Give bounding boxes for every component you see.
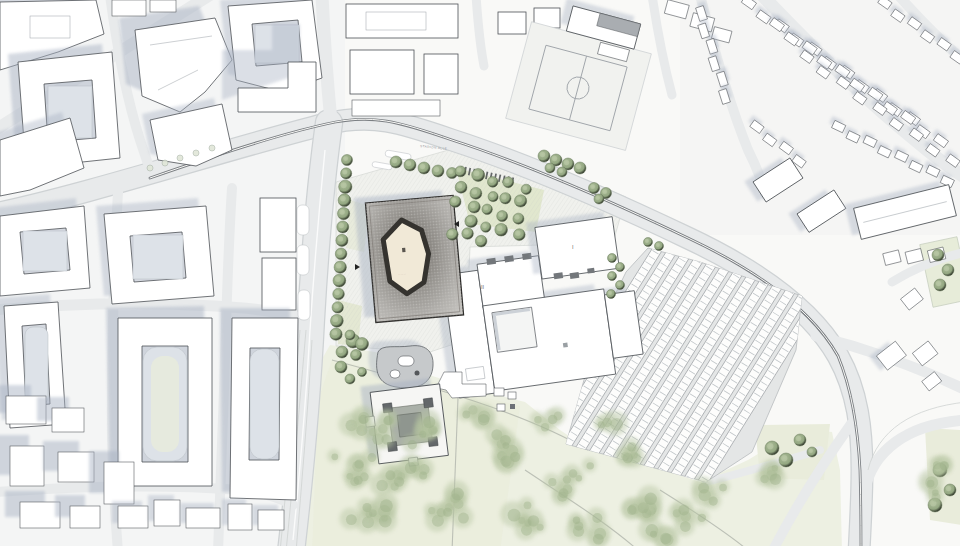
tree-highlight <box>552 156 557 161</box>
park-tree-core <box>458 513 469 524</box>
park-tree-core <box>385 470 395 480</box>
roof-vent <box>563 343 568 348</box>
tree-highlight <box>617 282 621 286</box>
site-plan-canvas: ·· ··· ·· STADION ALLE I II ·· ·· <box>0 0 960 546</box>
tree-highlight <box>392 158 397 163</box>
bus-bay <box>298 290 310 320</box>
park-tree-core <box>405 462 417 474</box>
tree-highlight <box>482 223 487 228</box>
tree-highlight <box>470 203 475 208</box>
tree-highlight <box>564 160 569 165</box>
park-tree-core <box>478 414 490 426</box>
tree-highlight <box>357 339 363 345</box>
masterplan-drawing: ·· ··· ·· STADION ALLE I II ·· ·· <box>0 0 960 546</box>
tree-highlight <box>474 170 480 176</box>
tree-highlight <box>451 198 456 203</box>
house <box>52 408 84 432</box>
tree-highlight <box>448 230 453 235</box>
entrance-block <box>587 268 595 274</box>
house <box>258 510 284 530</box>
pavilion-building <box>535 217 619 279</box>
tree-highlight <box>576 164 581 169</box>
park-tree-core <box>510 452 520 462</box>
city-block <box>350 50 414 94</box>
tree-highlight <box>540 152 545 157</box>
park-tree-core <box>528 515 539 526</box>
tree-highlight <box>484 206 489 211</box>
tree-highlight <box>457 168 462 173</box>
street-tree <box>177 155 183 161</box>
small-building <box>112 0 146 16</box>
park-tree-core <box>524 501 532 509</box>
park-tree-core <box>592 513 602 523</box>
tree-highlight <box>434 167 439 172</box>
house <box>154 500 180 526</box>
street-tree <box>209 145 215 151</box>
street <box>476 0 484 66</box>
park-tree-core <box>940 461 949 470</box>
annex-void <box>390 370 400 378</box>
tree-highlight <box>504 178 509 183</box>
courtyard <box>133 235 183 279</box>
park-tree-core <box>598 421 605 428</box>
tree-highlight <box>339 223 344 228</box>
annex <box>497 404 505 411</box>
park-tree-core <box>770 473 782 485</box>
tree-highlight <box>339 209 345 215</box>
annex-dot <box>415 371 420 376</box>
courtyard-marker <box>402 248 406 252</box>
tree-highlight <box>464 229 469 234</box>
slab-building <box>262 258 296 310</box>
park-tree-core <box>451 488 464 501</box>
park-tree-core <box>680 521 691 532</box>
park-tree-core <box>927 480 935 488</box>
tree-highlight <box>343 156 348 161</box>
park-tree-core <box>719 484 727 492</box>
tree-highlight <box>781 455 787 461</box>
slab-building <box>352 100 440 116</box>
tree-highlight <box>338 348 343 353</box>
park-tree-core <box>548 415 558 425</box>
park-tree-core <box>423 416 435 428</box>
tree-highlight <box>420 164 425 169</box>
tree-highlight <box>515 231 520 236</box>
house <box>905 248 923 264</box>
annex <box>494 388 504 396</box>
tree-highlight <box>477 237 482 242</box>
house <box>900 288 923 310</box>
house <box>118 506 148 528</box>
annex-void <box>398 356 414 366</box>
street <box>322 0 331 121</box>
tree-highlight <box>337 363 342 368</box>
park-tree-core <box>508 509 521 522</box>
tree-highlight <box>656 243 660 247</box>
park-tree-core <box>331 453 338 460</box>
courtyard <box>23 231 67 271</box>
park-tree-core <box>678 505 689 516</box>
park-tree-core <box>573 517 580 524</box>
house <box>186 508 220 528</box>
tree-highlight <box>590 184 595 189</box>
park-tree-core <box>359 415 368 424</box>
park-tree-core <box>362 503 371 512</box>
entrance-block <box>504 255 514 262</box>
house <box>20 502 60 528</box>
street-tree <box>147 165 153 171</box>
tree-highlight <box>340 196 346 202</box>
tree-highlight <box>337 250 342 255</box>
park-tree-core <box>932 490 939 497</box>
tree-highlight <box>515 215 520 220</box>
entrance-block <box>486 258 496 265</box>
tree-highlight <box>338 236 343 241</box>
house <box>104 462 134 504</box>
house <box>228 504 252 530</box>
street-tree <box>193 150 199 156</box>
tree-highlight <box>547 165 552 170</box>
park-tree-core <box>408 440 417 449</box>
tree-highlight <box>602 189 607 194</box>
house <box>883 250 901 266</box>
park-tree-core <box>709 497 718 506</box>
tree-highlight <box>335 276 341 282</box>
tree-highlight <box>609 255 613 259</box>
park-tree-core <box>650 531 657 538</box>
park-tree-core <box>354 460 363 469</box>
tree-highlight <box>457 183 462 188</box>
small-building <box>150 0 176 12</box>
park-tree-core <box>569 469 578 478</box>
tree-highlight <box>334 290 339 295</box>
annex <box>508 392 516 399</box>
tree-highlight <box>332 330 338 336</box>
tree-highlight <box>596 196 601 201</box>
courtyard-lawn <box>151 356 179 452</box>
tree-highlight <box>497 225 503 231</box>
entrance-block <box>570 272 580 279</box>
tree-highlight <box>336 263 342 269</box>
tree-highlight <box>609 273 613 277</box>
park-tree-core <box>548 478 556 486</box>
tree-highlight <box>767 443 773 449</box>
tree-highlight <box>501 194 506 199</box>
park-tree-core <box>443 508 452 517</box>
corner-tower <box>423 398 433 408</box>
tree-highlight <box>809 449 814 454</box>
park-tree-core <box>698 483 709 494</box>
entrance-block <box>522 253 532 260</box>
tree-highlight <box>347 332 352 337</box>
small-building <box>424 54 458 94</box>
tree-highlight <box>341 182 347 188</box>
tree-highlight <box>608 291 612 295</box>
courtyard <box>250 349 279 459</box>
tree-highlight <box>516 197 522 203</box>
tree-highlight <box>936 281 941 286</box>
tree-highlight <box>352 351 357 356</box>
street-tree <box>162 160 168 166</box>
tree-highlight <box>645 239 649 243</box>
building-numeral-2: II <box>481 284 485 290</box>
park-tree-core <box>381 434 391 444</box>
tree-highlight <box>559 169 564 174</box>
tree-highlight <box>617 264 621 268</box>
tree-highlight <box>334 303 339 308</box>
park-tree-core <box>559 488 569 498</box>
city-block <box>346 4 458 38</box>
tree-highlight <box>498 212 503 217</box>
park-tree-core <box>346 514 357 525</box>
tree-highlight <box>342 169 347 174</box>
tree-highlight <box>490 193 495 198</box>
park-tree-core <box>367 453 376 462</box>
park-tree-core <box>586 462 593 469</box>
bus-bay <box>297 205 309 235</box>
small-building <box>498 12 526 34</box>
tree-highlight <box>359 369 363 373</box>
tree-highlight <box>406 161 411 166</box>
tree-highlight <box>472 189 477 194</box>
park-tree-core <box>627 505 637 515</box>
tree-highlight <box>467 217 473 223</box>
entrance-block <box>553 272 563 279</box>
tree-highlight <box>946 486 951 491</box>
park-tree-core <box>627 442 636 451</box>
tree-highlight <box>448 169 453 174</box>
tree-highlight <box>347 376 352 381</box>
tree-highlight <box>523 186 528 191</box>
tree-highlight <box>796 436 801 441</box>
sports-green <box>920 237 960 308</box>
house <box>58 452 94 482</box>
park-tree-core <box>380 499 393 512</box>
tree-highlight <box>332 316 338 322</box>
house <box>912 341 938 366</box>
tree-highlight <box>934 251 939 256</box>
park-tree-core <box>354 476 363 485</box>
tree-highlight <box>944 266 949 271</box>
mosque-building: ·· ··· ·· <box>354 189 464 323</box>
sports-grounds <box>506 0 660 150</box>
park-tree-core <box>383 416 392 425</box>
park-tree-core <box>419 472 427 480</box>
slab-building <box>260 198 296 252</box>
park-tree-core <box>593 534 604 545</box>
tree-highlight <box>489 178 494 183</box>
park-tree-core <box>644 493 656 505</box>
annex-dark <box>510 404 515 409</box>
park-tree-core <box>698 514 706 522</box>
house <box>70 506 100 528</box>
house <box>10 446 44 486</box>
park-tree-core <box>462 411 470 419</box>
bus-bay <box>297 245 309 275</box>
park-tree-core <box>660 533 671 544</box>
